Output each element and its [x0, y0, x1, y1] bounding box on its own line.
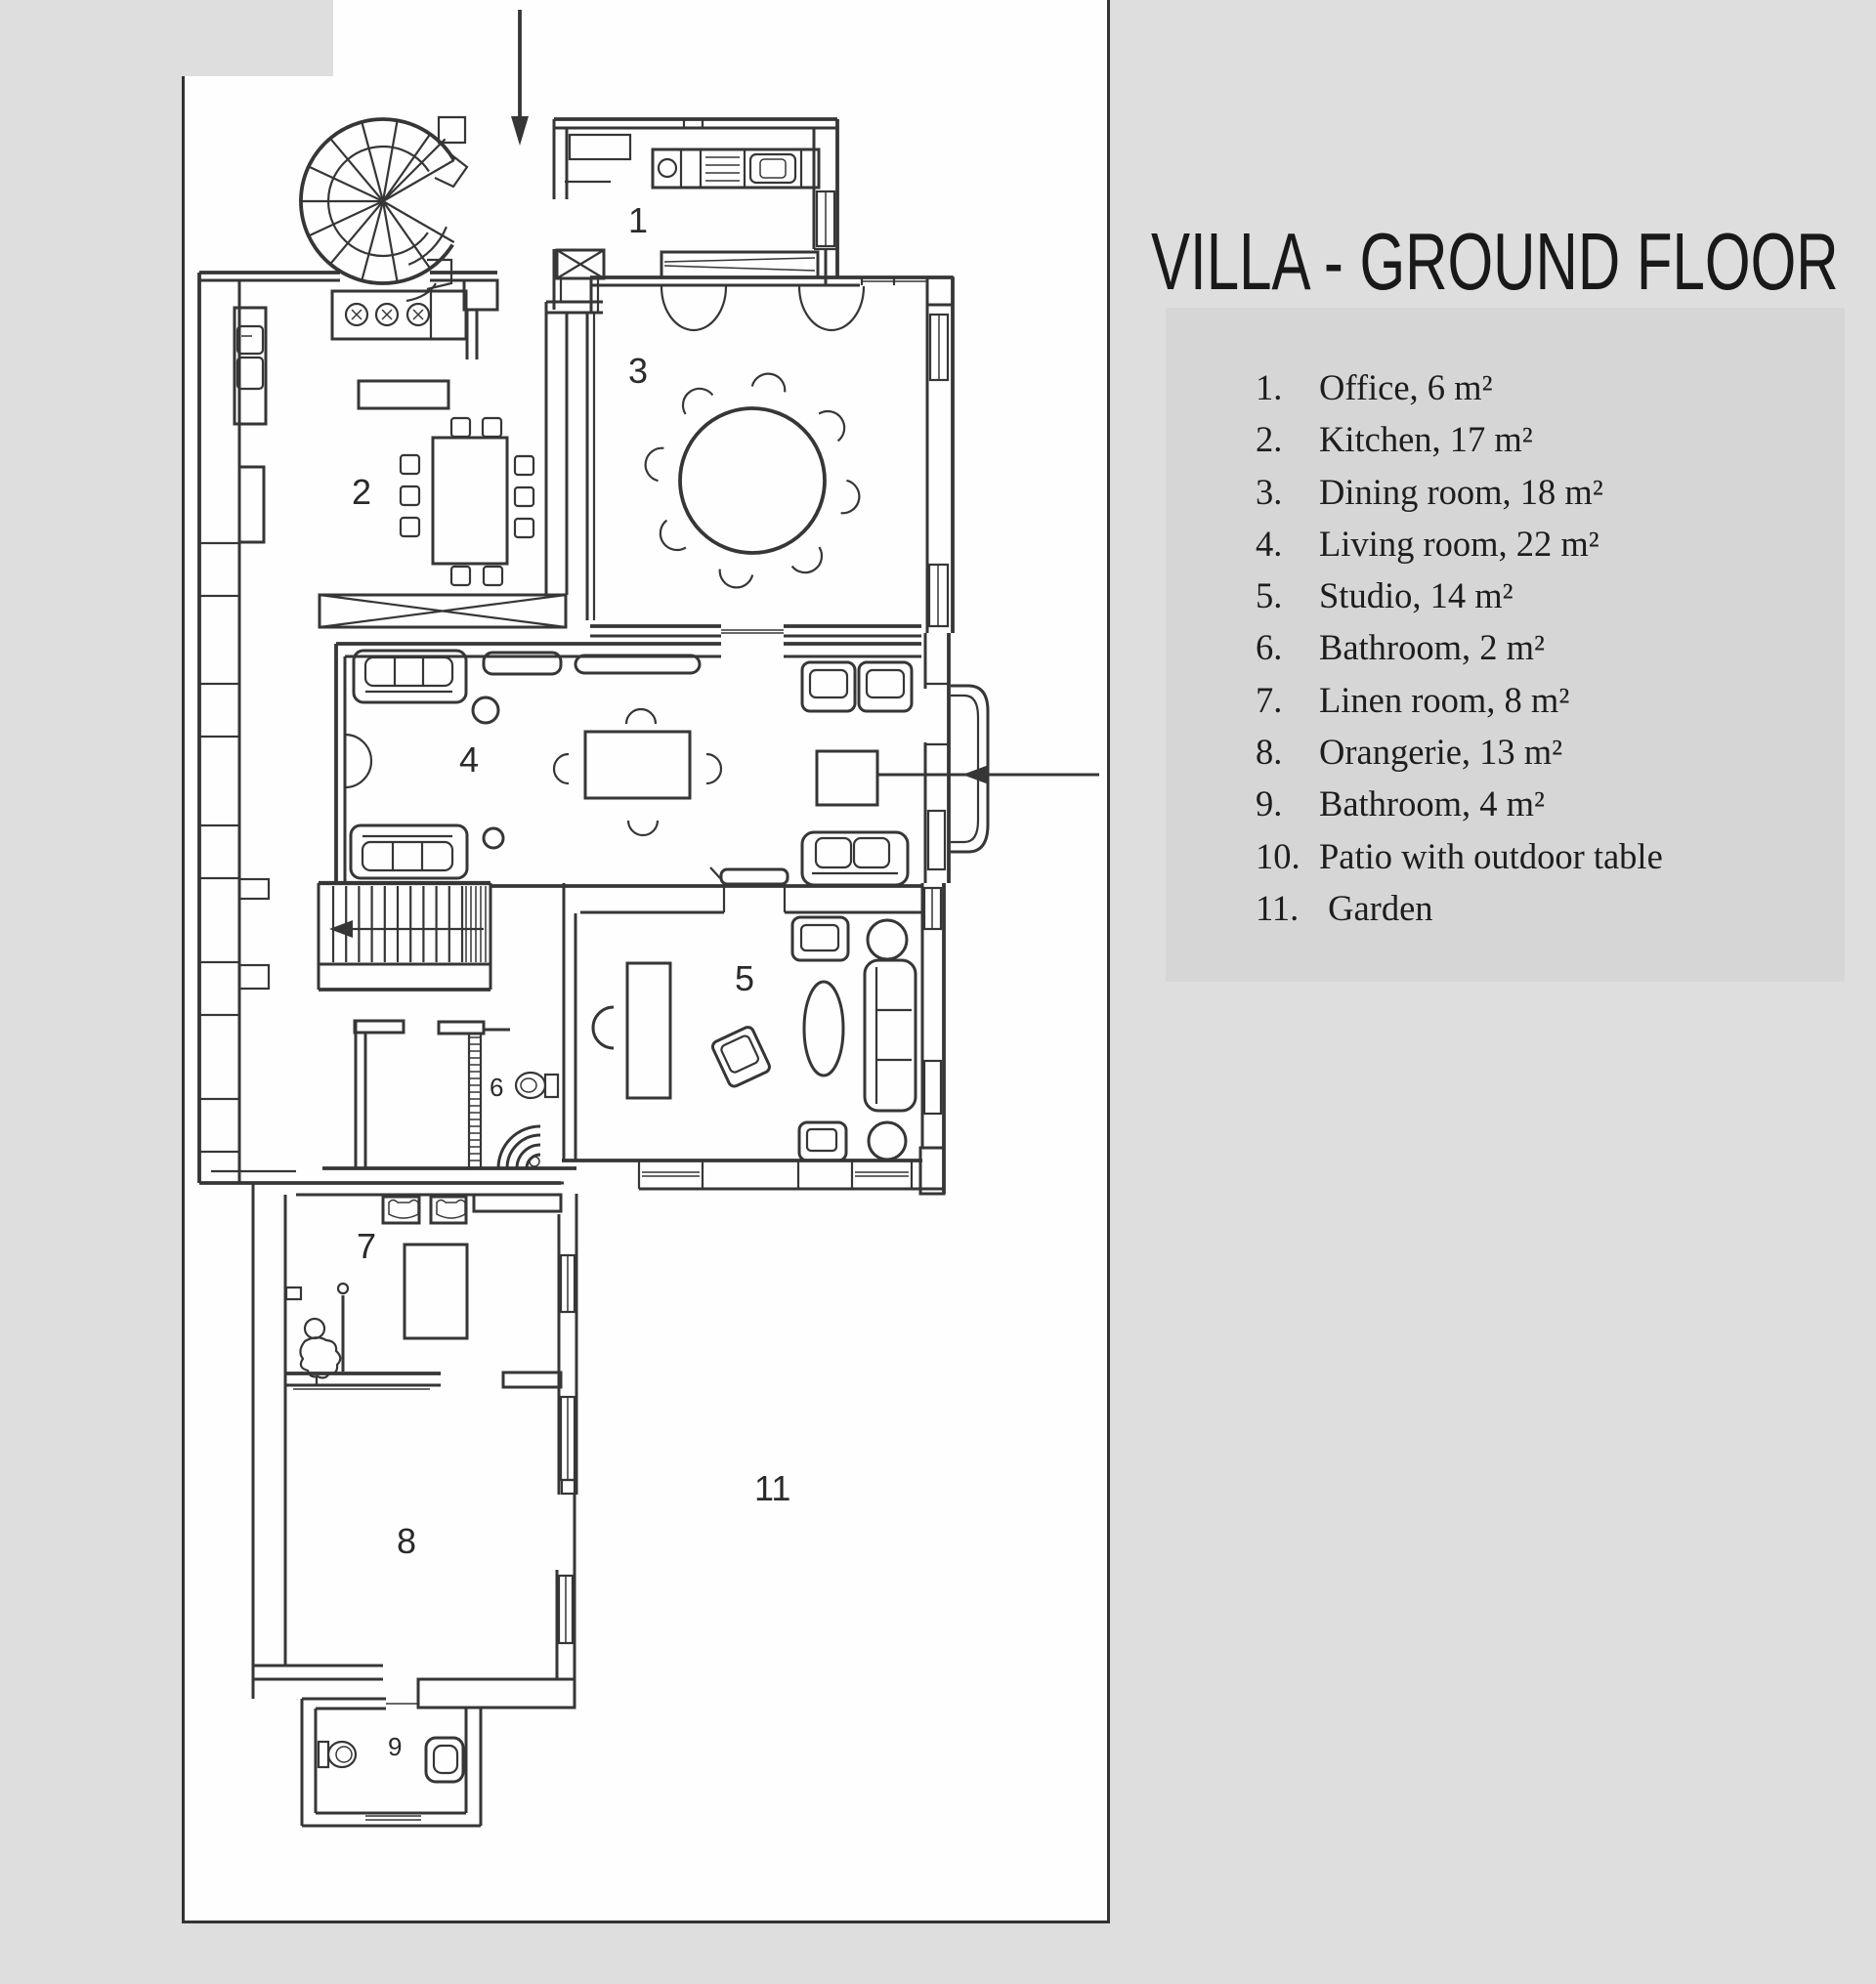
- svg-text:6: 6: [490, 1073, 503, 1102]
- svg-text:11: 11: [754, 1468, 790, 1508]
- svg-text:5: 5: [735, 958, 754, 998]
- svg-text:1: 1: [628, 200, 648, 240]
- svg-text:4: 4: [459, 739, 479, 780]
- svg-text:9: 9: [388, 1732, 402, 1761]
- svg-text:2: 2: [352, 472, 371, 512]
- svg-text:8: 8: [397, 1521, 416, 1561]
- svg-text:7: 7: [357, 1226, 376, 1266]
- svg-text:3: 3: [628, 351, 648, 391]
